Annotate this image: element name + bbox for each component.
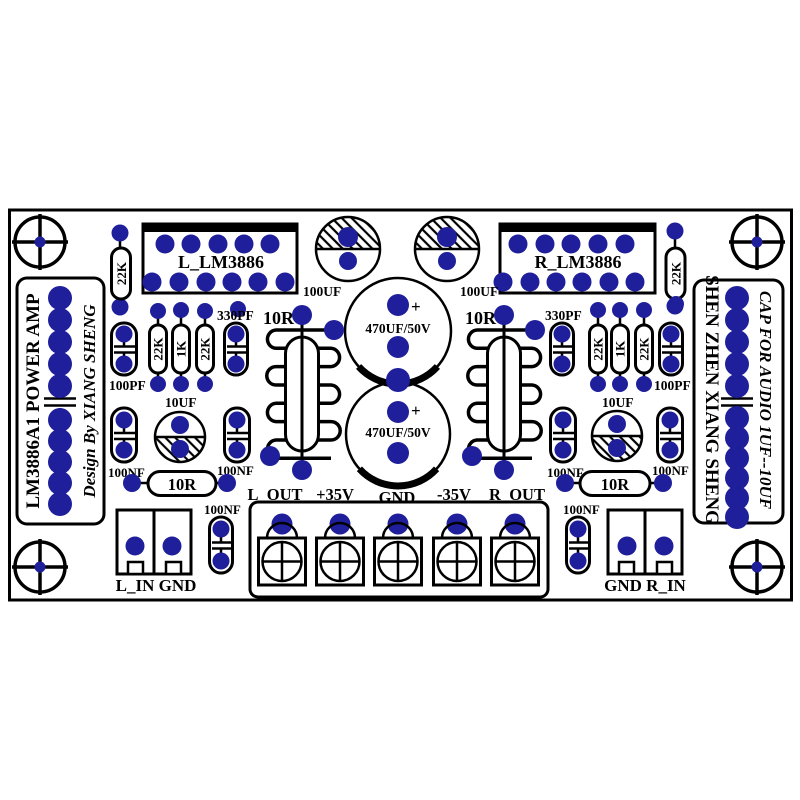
capacitor-100nf-right-a: 100NF xyxy=(547,408,584,480)
side-block-left-pads xyxy=(48,286,72,516)
screw-terminal-2 xyxy=(317,514,364,586)
mounting-hole-bottom-right xyxy=(729,539,785,595)
capacitor-100pf-left-label: 100PF xyxy=(109,378,146,393)
resistor-22k-left-b: 22K xyxy=(197,303,214,392)
resistor-22k-top-left-label: 22K xyxy=(114,261,129,285)
ic-right-label: R_LM3886 xyxy=(535,252,622,272)
terminal-label-plus35v: +35V xyxy=(316,485,354,504)
resistor-22k-right-b: 22K xyxy=(636,302,653,392)
screw-terminal-3 xyxy=(375,514,422,586)
side-block-left: LM3886A1 POWER AMP Design By XIANG SHENG xyxy=(17,278,104,524)
capacitor-100nf-bottom-right-label: 100NF xyxy=(563,502,600,517)
screw-terminal-5 xyxy=(492,514,539,586)
serpentine-right-10r-label: 10R xyxy=(465,308,497,328)
capacitor-470uf-top-label: 470UF/50V xyxy=(365,321,430,336)
resistor-10r-left-label: 10R xyxy=(168,475,198,494)
capacitor-10uf-left: 10UF xyxy=(155,395,205,462)
capacitor-100nf-right-b-label: 100NF xyxy=(652,463,689,478)
resistor-22k-left-a: 22K xyxy=(150,303,167,392)
capacitor-330pf-right: 330PF xyxy=(545,308,582,375)
pcb-layout-drawing: LM3886A1 POWER AMP Design By XIANG SHENG… xyxy=(0,0,800,800)
capacitor-330pf-left: 330PF xyxy=(217,301,254,375)
resistor-22k-right-b-label: 22K xyxy=(637,337,652,361)
terminal-label-l-out: L_OUT xyxy=(247,485,302,504)
resistor-22k-left-b-label: 22K xyxy=(198,337,213,361)
capacitor-100nf-right-b: 100NF xyxy=(652,408,689,478)
capacitor-470uf-top-polarity: + xyxy=(411,297,421,316)
resistor-1k-right: 1K xyxy=(612,302,629,392)
capacitor-10uf-right-label: 10UF xyxy=(602,395,634,410)
serpentine-trace-right: 10R xyxy=(462,305,545,480)
side-block-left-title: LM3886A1 POWER AMP xyxy=(23,293,44,509)
side-block-right-title: SHEN ZHEN XIANG SHENG xyxy=(701,275,722,525)
terminal-block: L_OUT +35V GND -35V R_OUT xyxy=(247,485,548,597)
screw-terminal-4 xyxy=(434,514,481,586)
resistor-10r-right-label: 10R xyxy=(601,475,631,494)
capacitor-100nf-left-a: 100NF xyxy=(108,408,145,480)
mounting-hole-top-right xyxy=(729,214,785,270)
resistor-1k-left-label: 1K xyxy=(174,340,189,358)
serpentine-left-10r-label: 10R xyxy=(263,308,295,328)
capacitor-100nf-left-b: 100NF xyxy=(217,408,254,478)
input-connector-left: L_IN GND xyxy=(116,510,197,595)
capacitor-10uf-right: 10UF xyxy=(592,395,642,461)
screw-terminal-1 xyxy=(259,514,306,586)
serpentine-trace-left: 10R xyxy=(260,305,344,480)
resistor-22k-right-a: 22K xyxy=(590,302,607,392)
capacitor-100pf-left: 100PF xyxy=(109,323,146,393)
terminal-label-minus35v: -35V xyxy=(437,485,471,504)
side-block-right: SHEN ZHEN XIANG SHENG CAP FOR AUDIO 1UF-… xyxy=(694,275,783,529)
capacitor-100uf-left-label: 100UF xyxy=(303,284,341,299)
capacitor-100pf-right-label: 100PF xyxy=(654,378,691,393)
mounting-hole-top-left xyxy=(12,214,68,270)
mounting-hole-bottom-left xyxy=(12,539,68,595)
side-block-right-pads xyxy=(725,286,749,529)
ic-right-lm3886: R_LM3886 xyxy=(494,224,656,293)
capacitor-100nf-bottom-right: 100NF xyxy=(563,502,600,573)
capacitor-330pf-right-label: 330PF xyxy=(545,308,582,323)
resistor-1k-left: 1K xyxy=(173,302,190,392)
ic-left-lm3886: L_LM3886 xyxy=(143,224,298,293)
capacitor-100pf-right: 100PF xyxy=(654,296,691,393)
resistor-1k-right-label: 1K xyxy=(613,340,628,358)
input-connector-right: GND R_IN xyxy=(604,510,686,595)
capacitor-470uf-bottom-polarity: + xyxy=(411,401,421,420)
resistor-22k-left-a-label: 22K xyxy=(151,337,166,361)
pcb-screenshot: LM3886A1 POWER AMP Design By XIANG SHENG… xyxy=(0,0,800,800)
resistor-22k-right-a-label: 22K xyxy=(591,337,606,361)
input-connector-left-label: L_IN GND xyxy=(116,576,197,595)
side-block-right-note: CAP FOR AUDIO 1UF--10UF xyxy=(756,291,775,510)
capacitor-470uf-bottom-label: 470UF/50V xyxy=(365,425,430,440)
input-connector-right-label: GND R_IN xyxy=(604,576,686,595)
resistor-22k-top-left: 22K xyxy=(112,225,131,316)
terminal-label-r-out: R_OUT xyxy=(489,485,545,504)
ic-left-label: L_LM3886 xyxy=(178,252,264,272)
capacitor-10uf-left-label: 10UF xyxy=(165,395,197,410)
capacitor-100uf-right-label: 100UF xyxy=(460,284,498,299)
terminal-label-gnd: GND xyxy=(379,488,416,507)
capacitor-330pf-left-label: 330PF xyxy=(217,308,254,323)
side-block-left-designer: Design By XIANG SHENG xyxy=(80,304,99,499)
capacitor-100nf-bottom-left: 100NF xyxy=(204,502,241,573)
capacitor-100nf-bottom-left-label: 100NF xyxy=(204,502,241,517)
capacitor-470uf-bottom: + 470UF/50V xyxy=(346,368,450,486)
resistor-22k-top-right-label: 22K xyxy=(669,261,684,285)
